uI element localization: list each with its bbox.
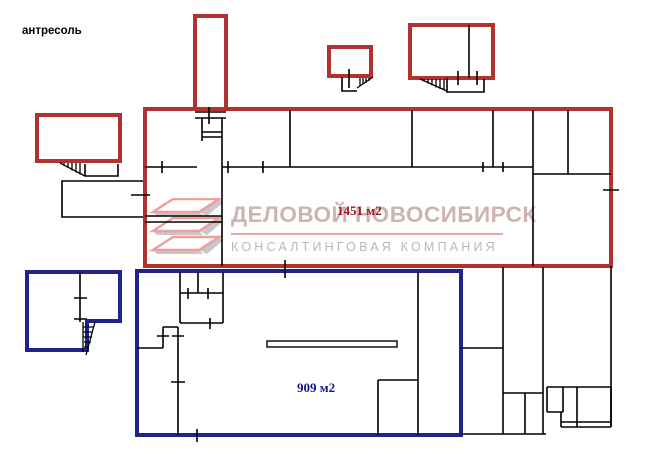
stairs-icon: [420, 79, 447, 91]
red-room-tall-shaft: [195, 16, 226, 109]
interior-walls-lower: [137, 272, 418, 442]
red-room-top-center: [329, 47, 371, 76]
blue-main-outline-909: [137, 271, 461, 435]
red-room-left: [37, 115, 120, 161]
area-label-1451: 1451 м2: [337, 203, 382, 219]
red-detached-rooms: [37, 16, 493, 161]
blue-room-stairs: [74, 272, 95, 355]
area-label-909: 909 м2: [297, 380, 335, 396]
stairs-icon: [357, 77, 373, 88]
blue-detached-room: [27, 272, 120, 350]
floorplan-canvas: антресоль ДЕЛОВОЙ НОВОСИБИРСК КОНСАЛТИН: [0, 0, 657, 459]
interior-walls-right-section: [461, 266, 611, 434]
red-room-top-right: [410, 25, 493, 78]
partition-bar: [267, 341, 397, 347]
stairs-icon: [60, 163, 85, 176]
